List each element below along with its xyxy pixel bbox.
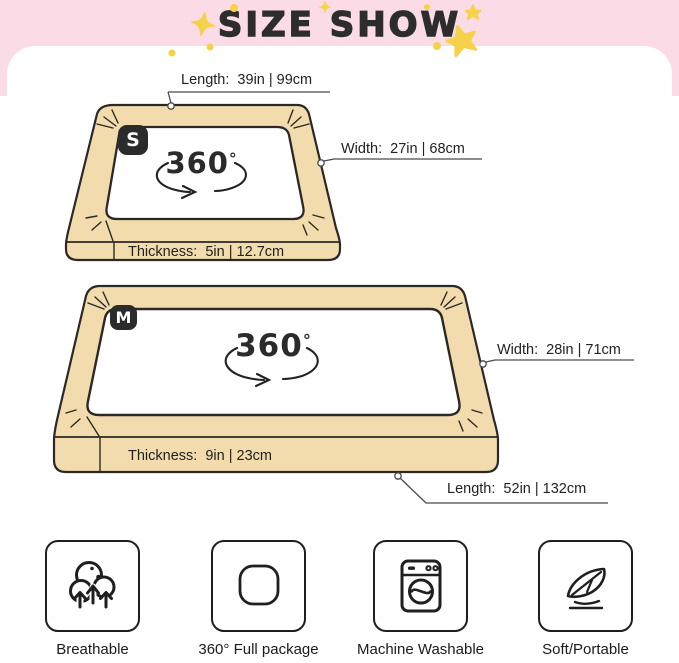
width-m-line <box>486 360 634 362</box>
length-s-anchor <box>168 103 174 109</box>
feature-box <box>211 540 306 632</box>
feature-box <box>373 540 468 632</box>
width-s-line <box>324 159 482 161</box>
feature-breathable: Breathable <box>45 540 140 632</box>
width-label-m: Width: 28in | 71cm <box>497 342 621 358</box>
feature-machine-washable: Machine Washable <box>373 540 468 632</box>
degree-symbol: ° <box>229 150 237 168</box>
thickness-label-m: Thickness: 9in | 23cm <box>128 448 272 464</box>
length-label-m: Length: 52in | 132cm <box>447 481 586 497</box>
feature-label: Machine Washable <box>357 641 484 658</box>
width-m-anchor <box>480 361 486 367</box>
size-badge-m: M <box>110 305 137 330</box>
length-m-anchor <box>395 473 401 479</box>
full-package-icon <box>229 556 289 616</box>
feature-box <box>45 540 140 632</box>
feature-label: 360° Full package <box>198 641 318 658</box>
rotate-360-value: 360 <box>165 146 229 180</box>
page-title: SIZE SHOW <box>0 5 679 45</box>
size-show-infographic: SIZE SHOW <box>0 0 679 663</box>
rotate-360-label-m: 360° <box>229 328 317 364</box>
length-label-s: Length: 39in | 99cm <box>181 72 312 88</box>
feature-label: Breathable <box>56 641 129 658</box>
width-label-s: Width: 27in | 68cm <box>341 141 465 157</box>
feature-soft-portable: Soft/Portable <box>538 540 633 632</box>
thickness-label-s: Thickness: 5in | 12.7cm <box>128 244 284 260</box>
rotate-360-value: 360 <box>235 328 303 364</box>
feature-box <box>538 540 633 632</box>
feather-icon <box>556 556 616 616</box>
width-s-anchor <box>318 160 324 166</box>
size-diagram <box>0 0 679 530</box>
feature-full-package: 360° Full package <box>211 540 306 632</box>
degree-symbol: ° <box>303 331 311 350</box>
rotate-360-label-s: 360° <box>158 146 244 180</box>
breathable-icon <box>63 556 123 616</box>
washing-machine-icon <box>391 556 451 616</box>
size-badge-s: S <box>118 125 148 155</box>
length-s-line <box>168 92 330 103</box>
bed-s <box>66 105 340 260</box>
feature-label: Soft/Portable <box>542 641 629 658</box>
